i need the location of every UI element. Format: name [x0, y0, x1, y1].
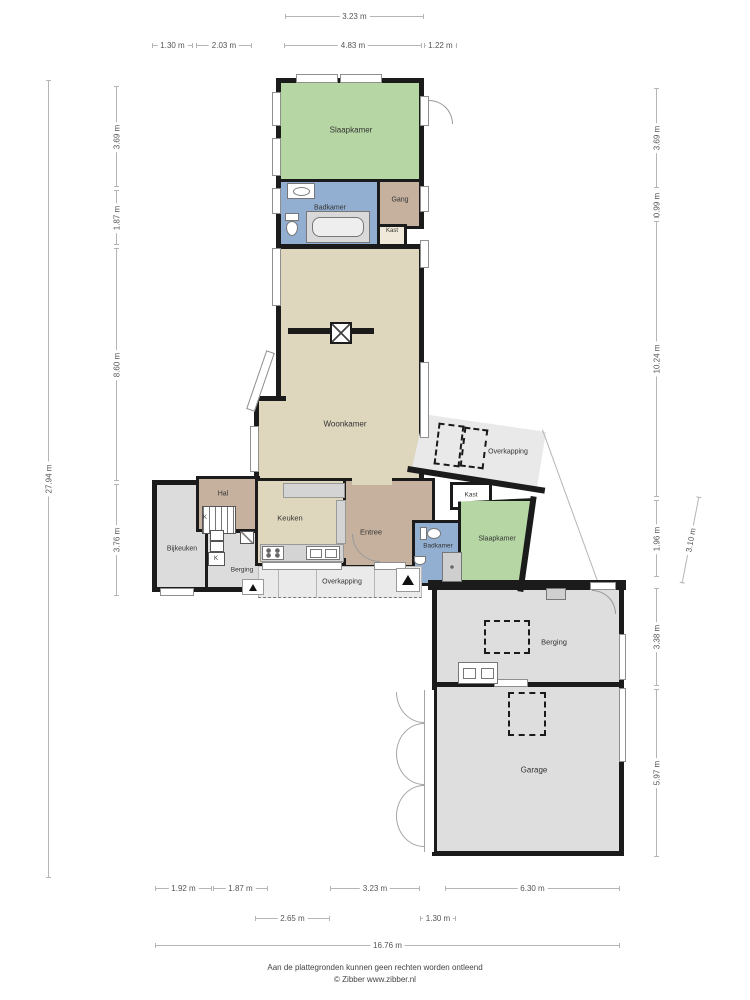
dimension-right-338: 3.38 m: [656, 588, 657, 686]
room-label-badkamer-bottom: Badkamer: [423, 543, 453, 550]
door-arc: [429, 100, 453, 124]
door-opening: [420, 186, 429, 212]
room-label-badkamer-top: Badkamer: [314, 205, 346, 212]
window: [250, 426, 259, 472]
window: [619, 688, 626, 762]
folding-door-arc: [396, 723, 424, 754]
room-label-slaapkamer-top: Slaapkamer: [330, 126, 373, 135]
room-label-bijkeuken: Bijkeuken: [167, 546, 197, 553]
entrance-arrow-box: [242, 579, 264, 595]
toilet-bowl-icon: [427, 528, 441, 539]
room-gang: [377, 179, 424, 229]
berging-sink-unit-icon: [458, 662, 498, 684]
dimension-bottom-323: 3.23 m: [330, 888, 420, 889]
dimension-left-860: 8.60 m: [116, 248, 117, 481]
dimension-right-1024: 10.24 m: [656, 221, 657, 497]
room-label-berging-small: Berging: [231, 567, 253, 574]
dimension-left-376: 3.76 m: [116, 484, 117, 596]
window: [340, 74, 382, 83]
dimension-bottom-130: 1.30 m: [420, 918, 456, 919]
dimension-right-369: 3.69 m: [656, 88, 657, 188]
window: [272, 248, 281, 306]
dimension-right-597: 5.97 m: [656, 689, 657, 857]
entrance-arrow-icon: [249, 584, 257, 591]
bathtub-icon: [306, 211, 370, 243]
room-label-garage: Garage: [521, 766, 548, 775]
dimension-left-187: 1.87 m: [116, 190, 117, 245]
dimension-left-369: 3.69 m: [116, 86, 117, 187]
door-opening: [590, 582, 616, 590]
window: [272, 138, 281, 176]
stove-icon: [262, 546, 284, 560]
dimension-bottom-187: 1.87 m: [213, 888, 268, 889]
room-label-keuken: Keuken: [277, 514, 302, 523]
room-label-hal: Hal: [218, 491, 229, 498]
footer-line1: Aan de plattegronden kunnen geen rechten…: [0, 962, 750, 974]
wall-unit-icon: [546, 588, 566, 600]
dimension-top-122: 1.22 m: [424, 45, 457, 46]
canopy-skylight-dashed: [460, 427, 489, 470]
dimension-bottom-192: 1.92 m: [155, 888, 212, 889]
sink-icon: [414, 556, 426, 565]
kitchen-sink-icon: [306, 546, 340, 560]
appliance-tower: [336, 500, 346, 544]
room-label-overkapping-bottom: Overkapping: [322, 579, 362, 586]
window: [296, 74, 338, 83]
room-label-gang: Gang: [391, 197, 408, 204]
dimension-top-203: 2.03 m: [196, 45, 252, 46]
dimension-left-total: 27.94 m: [48, 80, 49, 878]
window: [272, 188, 281, 214]
folding-door-arc: [396, 816, 424, 847]
dimension-bottom-630: 6.30 m: [445, 888, 620, 889]
meter-cabinet-icon: [210, 541, 224, 552]
footer-disclaimer: Aan de plattegronden kunnen geen rechten…: [0, 962, 750, 986]
folding-door-arc: [396, 692, 424, 723]
dimension-top-323: 3.23 m: [285, 16, 424, 17]
footer-line2: © Zibber www.zibber.nl: [0, 974, 750, 986]
dimension-right-099: 0.99 m: [656, 191, 657, 218]
canopy-post-line: [278, 567, 279, 597]
room-label-woonkamer: Woonkamer: [324, 420, 367, 429]
berging-skylight-dashed: [484, 620, 530, 654]
window: [619, 634, 626, 680]
passage-opening: [352, 478, 392, 485]
window: [262, 562, 342, 570]
dimension-top-130: 1.30 m: [152, 45, 193, 46]
canopy-post-line: [374, 567, 375, 597]
floorplan-canvas: Slaapkamer Badkamer Gang Kast Woonkamer …: [0, 0, 750, 1000]
folding-door-arc: [396, 754, 424, 785]
room-label-k2: K: [214, 556, 218, 562]
room-woonkamer: [276, 244, 424, 486]
room-label-k1: K: [203, 515, 207, 521]
meter-cabinet-icon: [210, 530, 224, 541]
window: [160, 588, 194, 596]
dimension-bottom-total: 16.76 m: [155, 945, 620, 946]
toilet-icon: [420, 527, 427, 540]
entrance-arrow-box: [396, 568, 420, 592]
door-opening: [420, 96, 429, 126]
north-arrow-icon: [402, 575, 414, 585]
room-label-kast-bottom: Kast: [464, 492, 477, 499]
folding-door-arc: [396, 785, 424, 816]
window: [420, 362, 429, 438]
dimension-bottom-265: 2.65 m: [255, 918, 330, 919]
mechanical-unit-icon: [240, 531, 254, 544]
room-label-overkapping-right: Overkapping: [488, 449, 528, 456]
room-label-slaapkamer-bottom: Slaapkamer: [478, 536, 515, 543]
toilet-icon: [285, 213, 299, 221]
site-boundary-line: [542, 430, 598, 581]
dimension-top-483: 4.83 m: [284, 45, 422, 46]
window: [272, 92, 281, 126]
room-label-berging-garage: Berging: [541, 638, 567, 647]
garage-skylight-dashed: [508, 692, 546, 736]
garage-door-strip: [424, 690, 434, 852]
door-opening: [494, 679, 528, 687]
room-label-entree: Entree: [360, 528, 382, 537]
flue-icon: [330, 322, 352, 344]
window: [420, 240, 429, 268]
sink-icon: [287, 183, 315, 199]
kitchen-counter-top: [283, 483, 345, 498]
dimension-right-310-diagonal: 3.10 m: [682, 497, 700, 584]
canopy-post-line: [316, 567, 317, 597]
dimension-right-196: 1.96 m: [656, 500, 657, 577]
shower-icon: [442, 552, 462, 582]
room-label-kast-top: Kast: [386, 228, 398, 234]
